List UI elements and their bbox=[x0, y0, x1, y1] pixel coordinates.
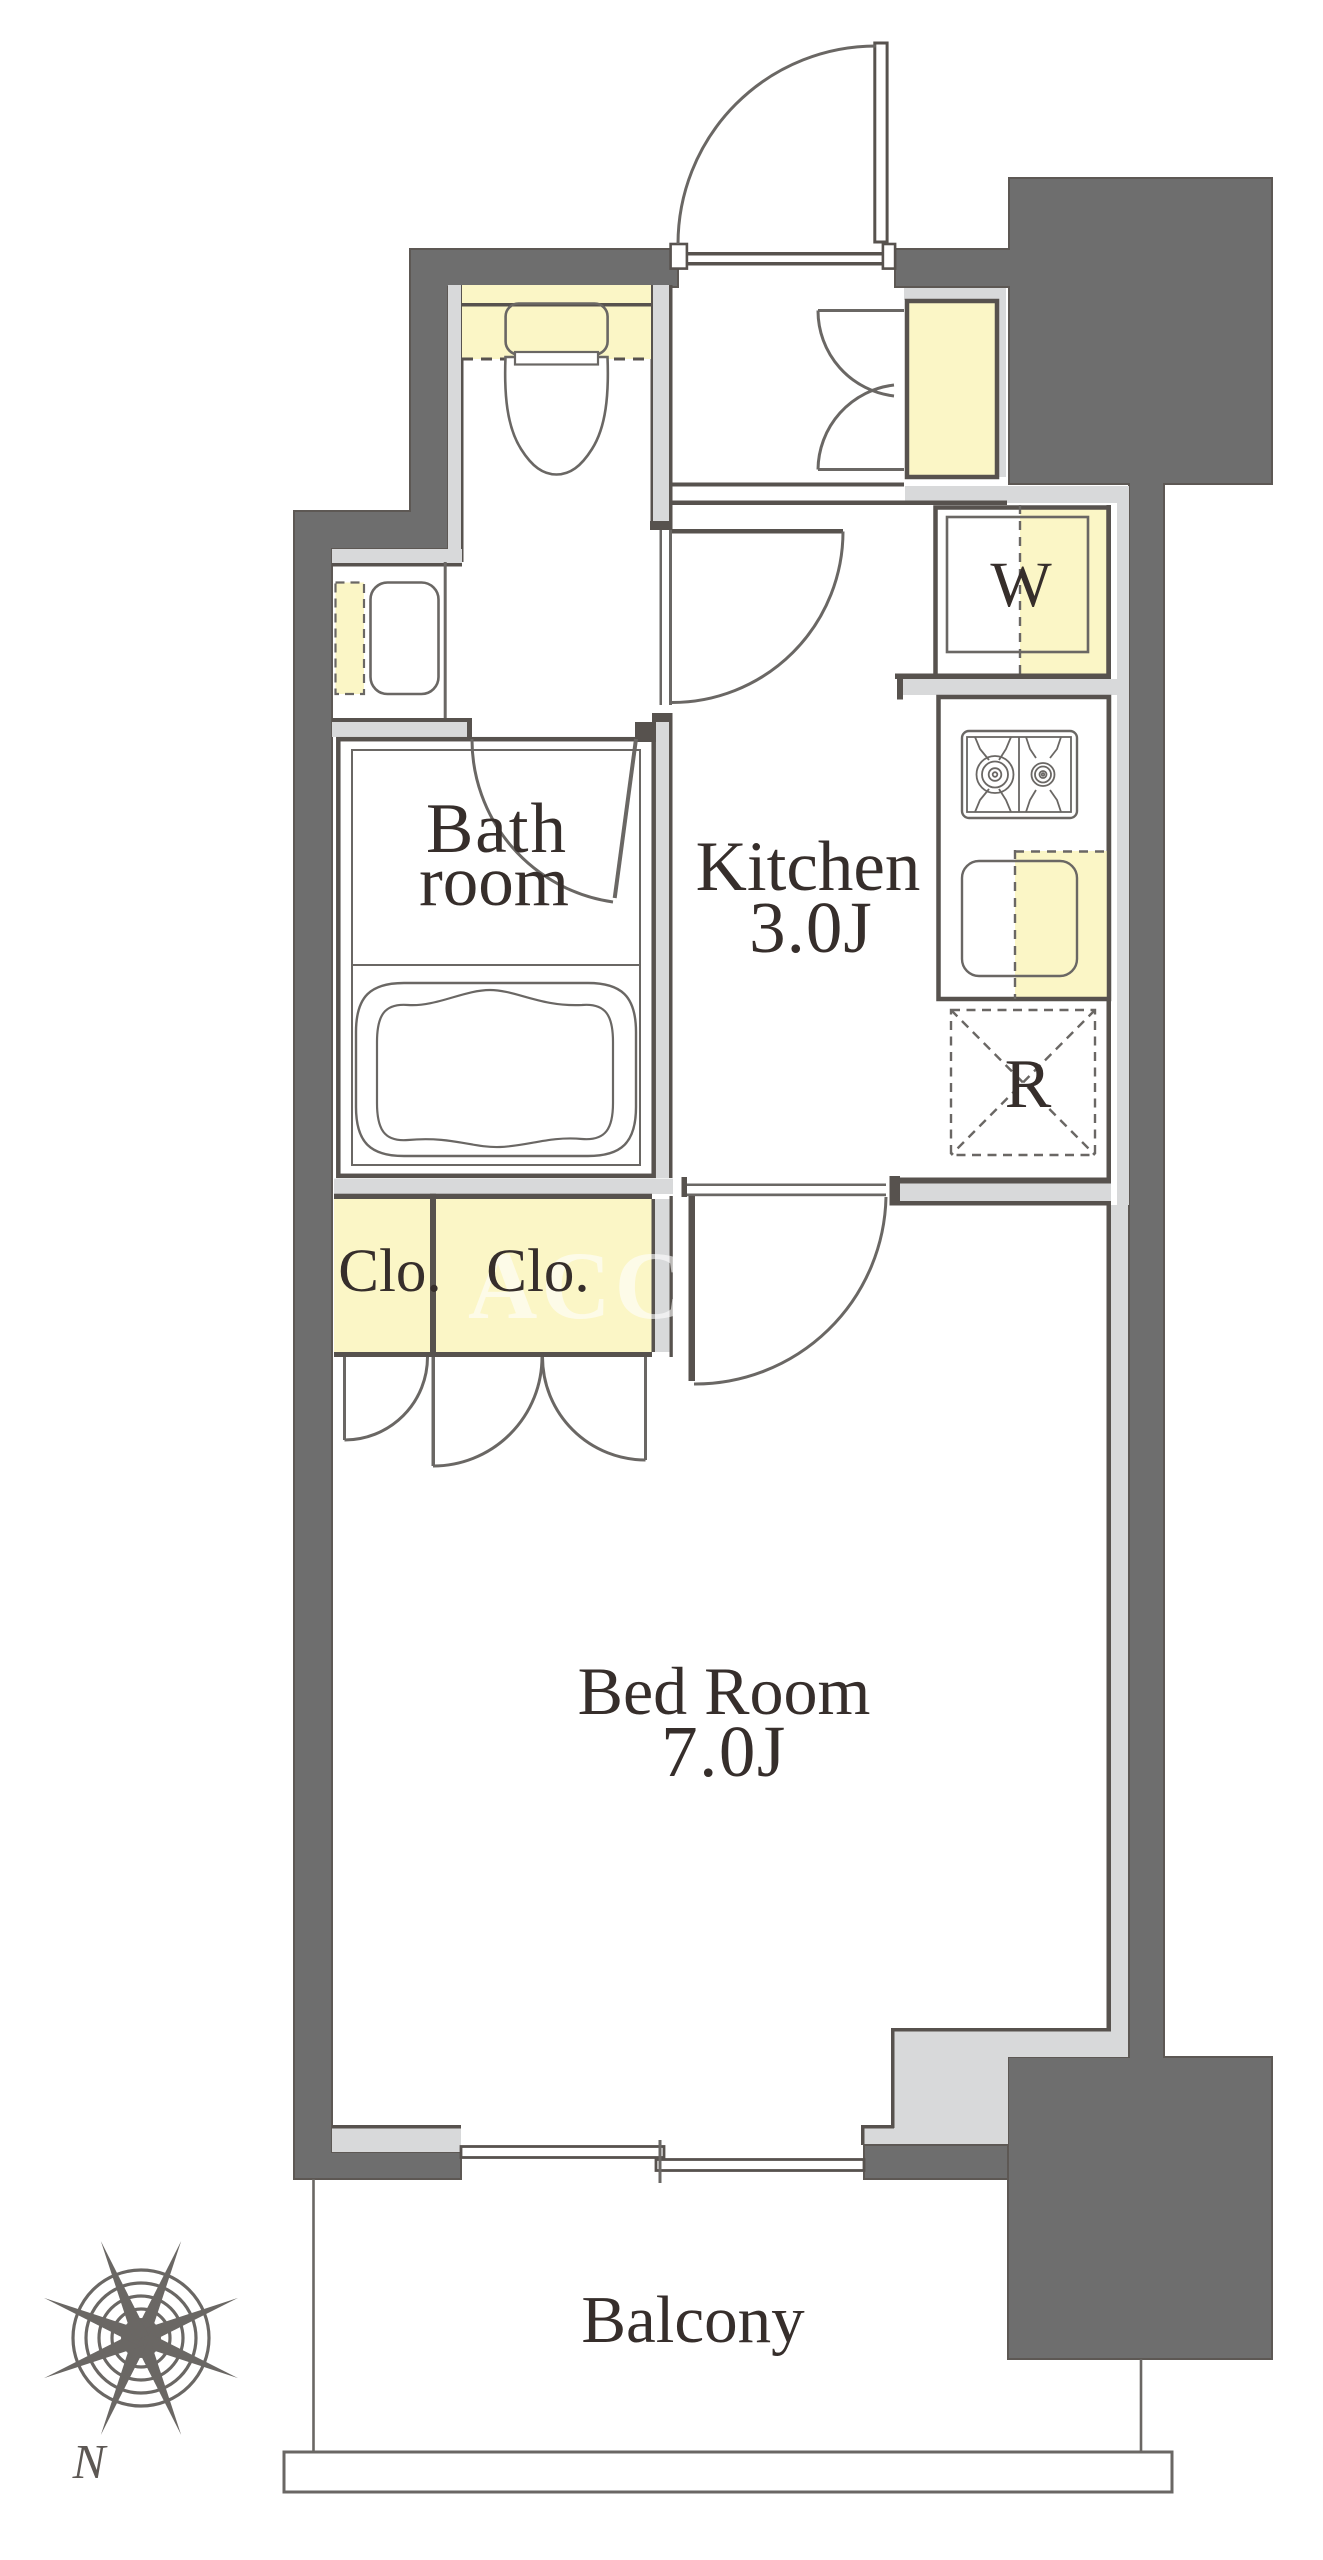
svg-text:room: room bbox=[419, 843, 569, 921]
svg-text:Clo.: Clo. bbox=[338, 1238, 441, 1305]
svg-text:N: N bbox=[72, 2434, 108, 2489]
svg-text:Clo.: Clo. bbox=[486, 1238, 589, 1305]
svg-text:Balcony: Balcony bbox=[581, 2283, 805, 2357]
svg-text:7.0J: 7.0J bbox=[661, 1711, 787, 1792]
svg-text:3.0J: 3.0J bbox=[749, 887, 873, 968]
svg-text:R: R bbox=[1005, 1046, 1052, 1123]
svg-text:W: W bbox=[990, 549, 1052, 621]
